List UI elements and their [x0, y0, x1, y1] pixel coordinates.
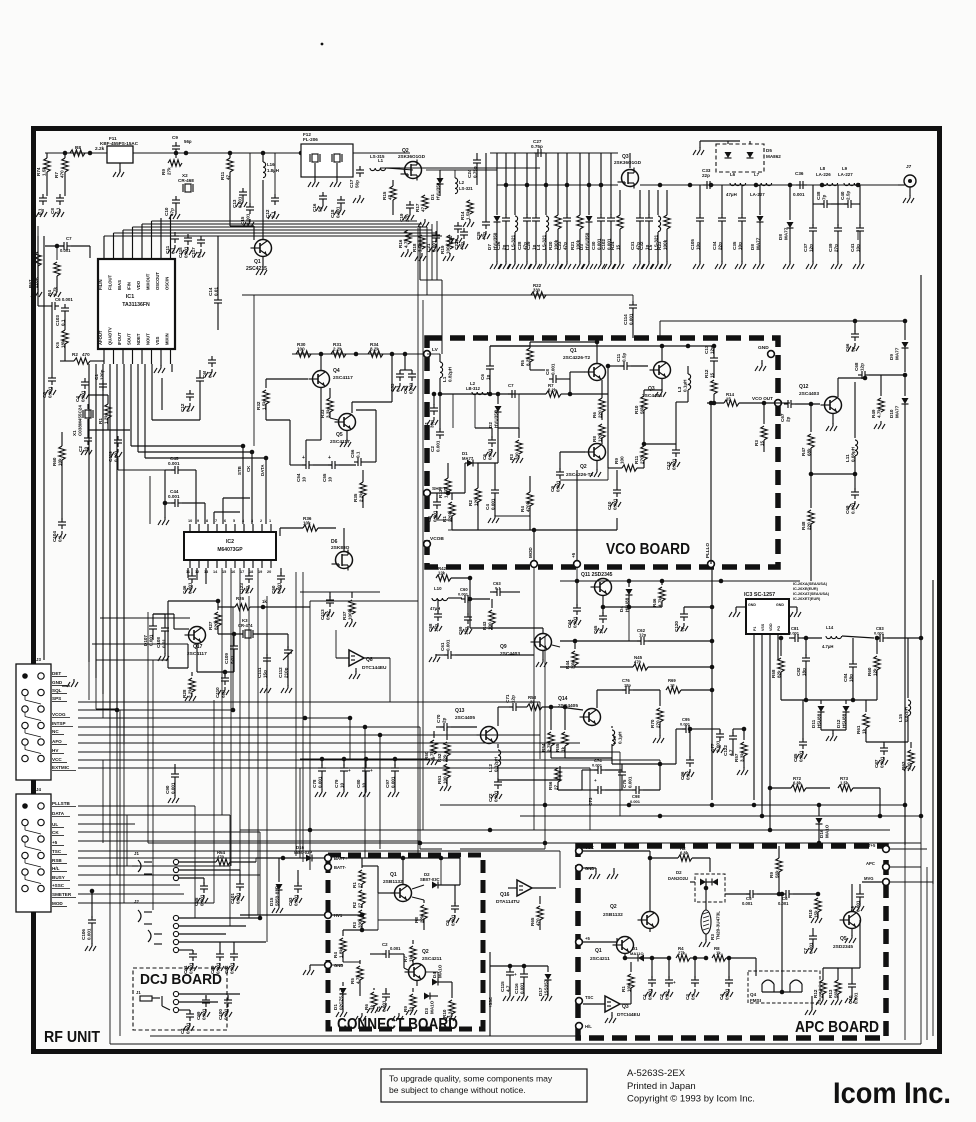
svg-text:VCO BOARD: VCO BOARD [606, 541, 690, 558]
svg-text:C38: C38 [816, 191, 821, 200]
svg-text:C40: C40 [840, 191, 845, 200]
svg-text:Q14: Q14 [558, 696, 568, 702]
svg-text:8.2k: 8.2k [548, 388, 557, 393]
svg-text:C10: C10 [164, 207, 169, 216]
svg-text:DAN2O2U: DAN2O2U [668, 876, 688, 881]
svg-text:Q5: Q5 [336, 432, 343, 438]
svg-text:0.001: 0.001 [390, 946, 401, 951]
svg-text:2.2k: 2.2k [333, 347, 342, 352]
svg-text:0.001: 0.001 [60, 248, 71, 253]
svg-text:R65: R65 [530, 917, 535, 926]
svg-text:Icom Inc.: Icom Inc. [833, 1077, 951, 1110]
svg-text:17: 17 [240, 570, 244, 574]
svg-text:D2: D2 [488, 422, 493, 428]
svg-text:C20: C20 [448, 235, 453, 244]
svg-text:Q4: Q4 [333, 368, 340, 374]
svg-text:C54: C54 [296, 473, 301, 482]
svg-text:2SC4117: 2SC4117 [333, 375, 353, 381]
svg-text:C9: C9 [172, 135, 178, 140]
svg-text:D8: D8 [750, 244, 755, 250]
svg-text:27k: 27k [166, 167, 171, 175]
svg-text:1.5k: 1.5k [465, 211, 470, 220]
svg-text:D3: D3 [424, 1008, 429, 1014]
svg-text:C84: C84 [843, 673, 848, 682]
svg-text:R1: R1 [352, 882, 357, 888]
svg-text:IFOUT: IFOUT [117, 332, 122, 345]
svg-text:C56: C56 [350, 449, 355, 458]
svg-text:0.001: 0.001 [458, 592, 469, 597]
svg-text:LA-227: LA-227 [838, 172, 853, 177]
svg-text:120p: 120p [99, 369, 104, 380]
svg-text:0.001: 0.001 [168, 494, 180, 499]
svg-text:R3: R3 [754, 440, 759, 446]
svg-text:16: 16 [231, 570, 235, 574]
svg-text:2p: 2p [441, 717, 446, 723]
svg-text:C8: C8 [545, 369, 550, 375]
svg-text:IFIN: IFIN [127, 282, 132, 290]
svg-text:C105: C105 [690, 239, 695, 250]
svg-text:IC-26XA(SEA/USA): IC-26XA(SEA/USA) [793, 582, 828, 586]
svg-text:C115: C115 [500, 981, 505, 992]
svg-text:D10: D10 [889, 409, 894, 418]
svg-text:C66: C66 [845, 343, 850, 352]
svg-text:+: + [328, 455, 331, 461]
svg-text:47p: 47p [562, 242, 567, 250]
svg-text:C15: C15 [240, 216, 245, 225]
svg-text:DTA114TU: DTA114TU [496, 899, 520, 905]
svg-text:R10: R10 [808, 909, 813, 918]
svg-text:C106: C106 [81, 929, 86, 940]
svg-text:D6: D6 [331, 539, 338, 545]
svg-text:18: 18 [249, 570, 253, 574]
svg-text:C4: C4 [485, 504, 490, 510]
svg-text:AFO: AFO [52, 739, 62, 744]
svg-text:C31: C31 [630, 241, 635, 250]
svg-text:C103: C103 [55, 315, 60, 326]
svg-text:1k: 1k [716, 951, 721, 956]
svg-text:47: 47 [225, 174, 230, 180]
svg-text:C32: C32 [639, 241, 644, 250]
svg-text:R46: R46 [652, 598, 657, 607]
svg-text:4.7μH: 4.7μH [822, 644, 833, 649]
svg-text:0.82μH: 0.82μH [447, 366, 452, 382]
svg-text:C46: C46 [182, 585, 187, 594]
svg-text:Q1: Q1 [390, 872, 397, 878]
svg-text:0.001: 0.001 [742, 901, 753, 906]
svg-text:R5: R5 [350, 978, 355, 984]
svg-text:J1: J1 [134, 851, 139, 856]
svg-text:R3: R3 [710, 934, 715, 940]
svg-text:QUADTV: QUADTV [108, 327, 113, 345]
svg-text:L8: L8 [820, 166, 826, 171]
svg-text:6: 6 [224, 519, 226, 523]
svg-text:GND: GND [748, 603, 756, 607]
svg-text:MA1O: MA1O [824, 824, 829, 838]
svg-text:47μH: 47μH [726, 192, 737, 197]
svg-text:PLLLO: PLLLO [705, 543, 710, 558]
svg-text:R47: R47 [801, 447, 806, 456]
svg-text:Q12: Q12 [799, 384, 809, 390]
svg-text:0.01: 0.01 [161, 639, 166, 648]
svg-text:R11: R11 [220, 171, 225, 180]
svg-text:2SC4211: 2SC4211 [590, 956, 610, 962]
svg-text:6.8k: 6.8k [680, 851, 689, 856]
svg-text:20: 20 [267, 570, 271, 574]
svg-text:IC-26XE(EUR): IC-26XE(EUR) [793, 587, 819, 591]
svg-text:MA77: MA77 [894, 405, 899, 418]
svg-text:Copyright © 1993 by Icom Inc.: Copyright © 1993 by Icom Inc. [627, 1094, 755, 1105]
svg-text:Q9: Q9 [500, 644, 507, 650]
svg-text:C6: C6 [480, 374, 485, 380]
svg-text:C26: C26 [496, 241, 501, 250]
svg-text:CR-468: CR-468 [178, 178, 194, 183]
svg-text:330: 330 [533, 288, 541, 293]
svg-text:0.001: 0.001 [630, 799, 641, 804]
svg-text:0.001: 0.001 [168, 461, 180, 466]
svg-text:MIXIN: MIXIN [165, 333, 170, 345]
svg-text:R10: R10 [442, 1009, 447, 1018]
svg-text:19: 19 [258, 570, 262, 574]
svg-text:0.001: 0.001 [874, 631, 885, 636]
svg-text:APC BOARD: APC BOARD [795, 1019, 879, 1036]
svg-text:2SB1132: 2SB1132 [383, 879, 403, 885]
svg-text:IC3 SC-1257: IC3 SC-1257 [744, 592, 775, 598]
svg-text:X1: X1 [72, 430, 77, 436]
svg-text:0.001: 0.001 [550, 363, 555, 375]
svg-text:Q1: Q1 [595, 948, 602, 954]
svg-text:R12: R12 [704, 369, 709, 378]
svg-text:DTC144EU: DTC144EU [362, 665, 387, 671]
svg-text:0.1μH: 0.1μH [682, 379, 687, 392]
svg-text:R4: R4 [333, 952, 338, 958]
svg-text:R60: R60 [52, 457, 57, 466]
svg-text:VCOB: VCOB [430, 536, 444, 542]
svg-text:L14: L14 [826, 625, 834, 630]
svg-text:D7: D7 [487, 244, 492, 250]
svg-text:R16: R16 [398, 239, 403, 248]
svg-text:C55: C55 [322, 473, 327, 482]
svg-text:VCO OUT: VCO OUT [752, 396, 773, 401]
svg-text:C120: C120 [674, 621, 679, 632]
svg-text:TSC: TSC [52, 849, 62, 854]
svg-text:C2: C2 [382, 942, 388, 947]
svg-text:TA31136FN: TA31136FN [122, 302, 150, 308]
svg-text:MA77: MA77 [894, 347, 899, 360]
svg-text:C97: C97 [385, 779, 390, 788]
svg-text:R9: R9 [769, 872, 774, 878]
svg-text:D16: D16 [819, 829, 824, 838]
svg-text:R67: R67 [28, 279, 33, 288]
svg-text:VCC: VCC [585, 845, 594, 850]
svg-text:MA862: MA862 [766, 154, 781, 159]
svg-text:470: 470 [217, 855, 225, 860]
svg-text:1: 1 [269, 519, 271, 523]
svg-text:R28: R28 [182, 689, 187, 698]
svg-text:C17: C17 [349, 179, 354, 188]
svg-text:L10: L10 [434, 586, 442, 591]
svg-text:GND: GND [52, 680, 63, 685]
svg-text:4.7k: 4.7k [403, 239, 408, 248]
svg-text:0.001: 0.001 [86, 928, 91, 940]
svg-text:Q2: Q2 [610, 904, 617, 910]
svg-text:GND: GND [758, 345, 769, 351]
svg-text:56p: 56p [184, 139, 192, 144]
svg-text:1k: 1k [262, 599, 267, 604]
svg-text:C65: C65 [593, 625, 598, 634]
svg-text:R19: R19 [440, 245, 445, 254]
svg-text:SQL: SQL [52, 688, 62, 693]
svg-text:0.001: 0.001 [680, 722, 691, 727]
svg-text:MIXOUT: MIXOUT [146, 273, 151, 290]
svg-text:R60: R60 [867, 667, 872, 676]
svg-text:R2: R2 [468, 500, 473, 506]
svg-text:C67: C67 [780, 413, 785, 422]
svg-text:R6: R6 [592, 412, 597, 418]
svg-text:0.001: 0.001 [445, 639, 450, 651]
svg-text:L3: L3 [505, 244, 510, 250]
svg-text:IC1: IC1 [126, 294, 134, 300]
svg-text:R1: R1 [621, 986, 626, 992]
svg-text:Q3: Q3 [648, 386, 655, 392]
svg-text:100: 100 [619, 456, 624, 464]
svg-text:DTCI44EU: DTCI44EU [617, 1012, 641, 1018]
svg-text:C8: C8 [50, 208, 55, 214]
svg-text:To upgrade quality, some compo: To upgrade quality, some components may [389, 1074, 553, 1084]
svg-text:6.8k: 6.8k [793, 781, 802, 786]
svg-text:C75: C75 [622, 779, 627, 788]
svg-text:C117: C117 [191, 247, 196, 258]
svg-text:Q17: Q17 [193, 644, 203, 650]
svg-text:5: 5 [233, 519, 235, 523]
svg-text:18: 18 [670, 683, 675, 688]
svg-text:OSCOUT: OSCOUT [155, 272, 160, 290]
svg-text:C28: C28 [517, 241, 522, 250]
svg-text:10: 10 [188, 519, 192, 523]
svg-text:GND: GND [334, 963, 343, 968]
svg-text:J7: J7 [906, 164, 912, 170]
svg-text:J2: J2 [134, 899, 139, 904]
svg-text:Q11 2SD2345: Q11 2SD2345 [581, 572, 613, 578]
svg-text:10p: 10p [737, 242, 742, 250]
svg-text:470: 470 [82, 352, 90, 357]
svg-text:100: 100 [297, 347, 305, 352]
svg-text:D1: D1 [430, 194, 435, 200]
svg-text:C123: C123 [239, 583, 244, 594]
svg-text:D8: D8 [778, 234, 783, 240]
svg-text:2SK88O: 2SK88O [331, 545, 350, 551]
svg-text:R3: R3 [352, 922, 357, 928]
svg-text:L16: L16 [267, 162, 275, 167]
svg-text:L4: L4 [536, 244, 541, 250]
svg-text:MA77: MA77 [755, 237, 760, 250]
svg-text:C78: C78 [312, 779, 317, 788]
svg-text:0.001: 0.001 [245, 213, 250, 225]
svg-text:Q3: Q3 [622, 1004, 629, 1010]
svg-text:NOUT: NOUT [146, 333, 151, 345]
svg-text:J1: J1 [136, 990, 141, 995]
svg-text:C11: C11 [616, 353, 621, 362]
svg-text:VSS: VSS [761, 623, 765, 631]
svg-text:2SB1132: 2SB1132 [603, 912, 623, 918]
svg-text:PO: PO [777, 626, 781, 631]
svg-text:2SC4226-T2: 2SC4226-T2 [566, 472, 594, 478]
svg-text:2SC4226-T2: 2SC4226-T2 [563, 355, 591, 361]
svg-text:1.8μH: 1.8μH [267, 168, 279, 173]
svg-text:R61: R61 [856, 725, 861, 734]
svg-text:R8: R8 [592, 436, 597, 442]
svg-text:HVU350: HVU350 [584, 232, 589, 250]
svg-text:J4: J4 [36, 787, 41, 792]
svg-text:D9: D9 [889, 354, 894, 360]
svg-text:2p: 2p [785, 416, 790, 422]
svg-text:L9: L9 [842, 166, 848, 171]
svg-text:LS-321: LS-321 [510, 234, 515, 250]
svg-text:10: 10 [327, 476, 332, 482]
svg-text:NDET: NDET [136, 333, 141, 345]
svg-text:D107: D107 [143, 635, 148, 646]
svg-text:2.2k: 2.2k [95, 146, 105, 152]
svg-text:12p: 12p [859, 363, 864, 371]
svg-text:LS-321: LS-321 [541, 234, 546, 250]
svg-text:R26: R26 [236, 596, 245, 601]
svg-text:C14: C14 [208, 287, 213, 296]
svg-text:C102: C102 [601, 239, 606, 250]
svg-text:LA-227: LA-227 [750, 192, 765, 197]
svg-text:L6: L6 [730, 172, 736, 177]
svg-text:2SC4403: 2SC4403 [500, 651, 520, 657]
svg-text:C109: C109 [224, 653, 229, 664]
svg-text:1.5k: 1.5k [840, 781, 849, 786]
svg-text:C23: C23 [557, 241, 562, 250]
svg-text:D15: D15 [269, 897, 274, 906]
svg-text:12p: 12p [808, 244, 813, 252]
svg-text:R15: R15 [382, 191, 387, 200]
svg-text:C25: C25 [476, 231, 481, 240]
svg-text:2: 2 [260, 519, 262, 523]
svg-text:C2: C2 [430, 446, 435, 452]
svg-text:R74: R74 [36, 167, 41, 176]
svg-text:C112: C112 [278, 667, 283, 678]
svg-text:C7: C7 [66, 236, 72, 241]
svg-text:UL: UL [52, 822, 58, 827]
svg-text:10p: 10p [695, 242, 700, 250]
svg-text:VCC: VCC [52, 757, 62, 762]
svg-text:VDD: VDD [769, 623, 773, 631]
svg-text:AFOUT: AFOUT [98, 330, 103, 345]
svg-text:0.1: 0.1 [355, 451, 360, 458]
svg-text:2SD2345: 2SD2345 [833, 944, 853, 950]
svg-text:Q4: Q4 [750, 992, 757, 997]
svg-text:T+5: T+5 [868, 843, 876, 848]
svg-text:47μH: 47μH [430, 606, 440, 611]
svg-text:D5: D5 [766, 148, 772, 153]
svg-text:MA1O: MA1O [429, 1000, 434, 1014]
svg-text:22p: 22p [717, 242, 722, 250]
svg-text:27p: 27p [833, 244, 838, 252]
svg-text:C30: C30 [591, 241, 596, 250]
svg-text:SPS: SPS [52, 696, 61, 701]
svg-text:H/L: H/L [585, 1024, 592, 1029]
svg-text:R32: R32 [256, 401, 261, 410]
svg-text:Q16: Q16 [500, 892, 510, 898]
svg-text:VCOG: VCOG [52, 712, 66, 717]
svg-text:C038M455C24: C038M455C24 [77, 405, 82, 436]
svg-text:D17: D17 [538, 987, 543, 996]
svg-text:C70: C70 [436, 714, 441, 723]
svg-text:56p: 56p [354, 180, 359, 188]
svg-text:R14: R14 [460, 211, 465, 220]
svg-text:DATA: DATA [260, 464, 265, 476]
svg-text:27k: 27k [678, 951, 686, 956]
svg-text:R18: R18 [412, 243, 417, 252]
svg-text:+: + [673, 980, 676, 985]
svg-text:L11: L11 [845, 454, 850, 462]
svg-text:be subject to change without n: be subject to change without notice. [389, 1085, 526, 1095]
svg-text:R58: R58 [771, 669, 776, 678]
svg-text:22p: 22p [702, 173, 710, 178]
svg-text:0.001: 0.001 [793, 192, 805, 197]
svg-text:IC-26XET(EUR): IC-26XET(EUR) [793, 597, 821, 601]
svg-text:TSC: TSC [585, 995, 593, 1000]
svg-text:C50: C50 [271, 585, 276, 594]
svg-text:A-5263S-2EX: A-5263S-2EX [627, 1068, 686, 1079]
svg-text:R27: R27 [208, 621, 213, 630]
svg-text:L7: L7 [754, 172, 760, 177]
svg-text:C24: C24 [467, 169, 472, 178]
svg-text:DET: DET [52, 671, 61, 676]
svg-text:15: 15 [222, 570, 226, 574]
svg-text:C34: C34 [712, 241, 717, 250]
svg-text:R1: R1 [98, 418, 103, 424]
svg-text:L2: L2 [459, 180, 465, 185]
svg-text:8: 8 [206, 519, 208, 523]
svg-text:EXTMIC: EXTMIC [52, 765, 70, 770]
svg-text:STB: STB [237, 466, 242, 475]
svg-text:OSCIN: OSCIN [165, 277, 170, 290]
svg-text:L13: L13 [612, 736, 617, 744]
svg-text:NC: NC [52, 729, 59, 734]
svg-text:2SC4405: 2SC4405 [455, 715, 475, 721]
svg-text:2SC4403: 2SC4403 [799, 391, 819, 397]
svg-text:R4: R4 [520, 506, 525, 512]
svg-text:R13: R13 [828, 989, 833, 998]
svg-text:R12: R12 [813, 989, 818, 998]
svg-text:R20: R20 [548, 241, 553, 250]
svg-text:R57: R57 [734, 753, 739, 762]
svg-text:HV: HV [52, 748, 59, 753]
svg-text:C41: C41 [850, 243, 855, 252]
svg-text:R5: R5 [520, 360, 525, 366]
svg-text:R3: R3 [509, 454, 514, 460]
svg-text:MOD: MOD [528, 547, 533, 558]
svg-text:LB-312: LB-312 [466, 386, 481, 391]
svg-text:L5: L5 [648, 244, 653, 250]
svg-text:CK: CK [246, 465, 251, 472]
svg-text:LV: LV [432, 347, 439, 353]
svg-text:L3: L3 [677, 386, 682, 392]
svg-text:SMETER: SMETER [52, 892, 72, 897]
svg-text:R6: R6 [364, 1004, 369, 1010]
svg-text:C124: C124 [32, 204, 37, 215]
svg-text:C59: C59 [458, 626, 463, 635]
svg-text:L1: L1 [442, 376, 447, 382]
svg-text:MA77: MA77 [783, 227, 788, 240]
svg-text:FILOUT: FILOUT [108, 274, 113, 290]
svg-text:39k: 39k [570, 661, 575, 669]
svg-text:10k: 10k [303, 521, 311, 526]
svg-text:C39: C39 [828, 243, 833, 252]
svg-text:L15: L15 [898, 714, 903, 722]
